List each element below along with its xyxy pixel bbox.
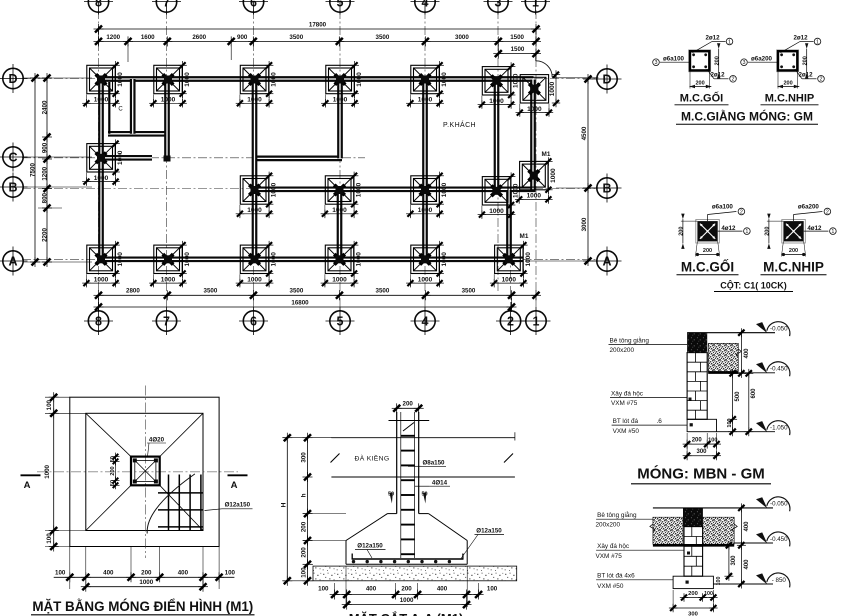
svg-text:400: 400 [366, 585, 377, 592]
svg-text:CỘT: C1( 10CK): CỘT: C1( 10CK) [720, 280, 787, 291]
svg-text:MẶT BẰNG MÓNG ĐIỂN HÌNH (M1): MẶT BẰNG MÓNG ĐIỂN HÌNH (M1) [32, 599, 253, 614]
svg-text:3500: 3500 [462, 288, 476, 295]
svg-text:100: 100 [318, 585, 329, 592]
svg-text:P.KHÁCH: P.KHÁCH [443, 120, 476, 129]
svg-text:1000: 1000 [549, 81, 556, 96]
svg-text:MẶT CẮT A-A (M1): MẶT CẮT A-A (M1) [349, 611, 464, 616]
svg-text:1000: 1000 [94, 175, 109, 182]
svg-text:1000: 1000 [418, 276, 433, 283]
svg-text:50: 50 [110, 480, 116, 486]
svg-text:ø6a200: ø6a200 [751, 56, 773, 63]
svg-text:VXM #75: VXM #75 [596, 553, 623, 560]
svg-text:400: 400 [744, 348, 750, 359]
svg-text:MÓNG: MBN - GM: MÓNG: MBN - GM [637, 465, 764, 483]
svg-text:200: 200 [301, 521, 308, 532]
svg-text:100: 100 [225, 569, 236, 576]
svg-text:200: 200 [703, 248, 712, 254]
svg-text:2200: 2200 [41, 228, 48, 242]
svg-text:VXM #50: VXM #50 [613, 428, 640, 435]
svg-text:200: 200 [301, 547, 308, 558]
svg-text:500: 500 [735, 391, 741, 402]
svg-text:1000: 1000 [525, 252, 532, 267]
svg-text:400: 400 [437, 585, 448, 592]
svg-text:600: 600 [751, 388, 757, 399]
svg-text:Bê tông giằng: Bê tông giằng [610, 335, 650, 344]
svg-text:300: 300 [688, 612, 698, 616]
svg-text:VXM #75: VXM #75 [611, 400, 638, 407]
svg-text:1000: 1000 [418, 207, 433, 214]
svg-text:200: 200 [403, 400, 414, 407]
svg-text:ĐÀ KIỀNG: ĐÀ KIỀNG [355, 453, 390, 463]
svg-text:1000: 1000 [513, 183, 520, 198]
svg-text:1000: 1000 [400, 597, 414, 604]
svg-text:1000: 1000 [247, 207, 262, 214]
svg-text:Xây đá hộc: Xây đá hộc [611, 390, 644, 397]
svg-text:M1: M1 [520, 233, 529, 240]
svg-text:300: 300 [731, 555, 737, 566]
svg-text:1000: 1000 [184, 252, 191, 267]
svg-text:100: 100 [708, 438, 717, 444]
svg-text:1000: 1000 [527, 106, 542, 113]
svg-text:1000: 1000 [44, 464, 51, 478]
svg-text:1000: 1000 [333, 97, 348, 104]
svg-text:2400: 2400 [41, 100, 48, 114]
svg-text:4500: 4500 [581, 126, 588, 140]
svg-text:100: 100 [301, 567, 308, 578]
svg-text:2800: 2800 [126, 288, 140, 295]
svg-text:1000: 1000 [356, 252, 363, 267]
svg-text:1000: 1000 [332, 276, 347, 283]
svg-text:200x200: 200x200 [610, 347, 635, 354]
svg-text:800: 800 [41, 192, 48, 203]
svg-text:4Ø20: 4Ø20 [149, 437, 165, 444]
svg-text:200: 200 [692, 438, 703, 444]
svg-text:-0.050: -0.050 [770, 326, 788, 333]
svg-text:M.C.GIẰNG MÓNG: GM: M.C.GIẰNG MÓNG: GM [681, 109, 813, 124]
svg-text:2ø12: 2ø12 [793, 35, 808, 42]
svg-text:.6: .6 [657, 418, 663, 425]
svg-text:1000: 1000 [441, 72, 448, 87]
svg-text:1500: 1500 [510, 34, 524, 41]
svg-text:16800: 16800 [291, 299, 309, 306]
svg-text:1000: 1000 [489, 208, 504, 215]
svg-text:1000: 1000 [356, 182, 363, 197]
svg-text:-0.050: -0.050 [770, 501, 788, 508]
svg-text:3000: 3000 [581, 217, 588, 231]
svg-text:100: 100 [727, 418, 733, 427]
svg-text:1000: 1000 [527, 193, 542, 200]
svg-text:1000: 1000 [139, 579, 153, 586]
svg-text:900: 900 [237, 34, 248, 41]
svg-text:A: A [24, 480, 31, 491]
svg-text:3500: 3500 [290, 288, 304, 295]
svg-text:2: 2 [826, 209, 829, 215]
svg-text:200: 200 [802, 56, 808, 65]
svg-text:3000: 3000 [455, 34, 469, 41]
svg-text:1: 1 [728, 39, 731, 45]
svg-text:VXM #50: VXM #50 [597, 583, 624, 590]
svg-text:100: 100 [46, 399, 53, 410]
svg-text:400: 400 [744, 559, 750, 570]
svg-text:1: 1 [816, 39, 819, 45]
svg-text:2ø12: 2ø12 [798, 72, 813, 79]
svg-text:200: 200 [784, 80, 793, 86]
svg-text:1000: 1000 [513, 73, 520, 88]
svg-text:3: 3 [655, 60, 658, 66]
svg-text:300: 300 [301, 452, 308, 463]
svg-text:3500: 3500 [204, 288, 218, 295]
svg-text:ø6a100: ø6a100 [712, 204, 734, 211]
svg-text:h: h [301, 493, 308, 497]
svg-text:1: 1 [831, 229, 834, 235]
svg-text:100: 100 [716, 577, 722, 586]
svg-text:ø6a100: ø6a100 [663, 56, 685, 63]
svg-text:1000: 1000 [356, 72, 363, 87]
svg-text:1000: 1000 [418, 97, 433, 104]
svg-text:400: 400 [744, 521, 750, 532]
svg-text:50: 50 [110, 456, 116, 462]
svg-text:Ø8a150: Ø8a150 [422, 459, 445, 466]
svg-text:200: 200 [764, 227, 770, 236]
svg-text:17800: 17800 [309, 22, 327, 29]
svg-text:Ø12a150: Ø12a150 [476, 527, 502, 534]
svg-text:1000: 1000 [271, 72, 278, 87]
svg-text:H: H [281, 502, 288, 507]
svg-text:1000: 1000 [184, 72, 191, 87]
svg-text:2600: 2600 [192, 34, 206, 41]
svg-text:200: 200 [110, 466, 116, 475]
svg-text:2: 2 [732, 77, 735, 83]
svg-text:200: 200 [401, 585, 412, 592]
svg-text:200: 200 [678, 227, 684, 236]
svg-text:3500: 3500 [289, 34, 303, 41]
svg-text:200: 200 [688, 591, 698, 597]
svg-text:A: A [231, 480, 238, 491]
svg-text:Ø12a150: Ø12a150 [357, 542, 383, 549]
svg-text:1000: 1000 [271, 252, 278, 267]
svg-text:1000: 1000 [94, 276, 109, 283]
svg-text:C: C [118, 107, 123, 113]
svg-text:1600: 1600 [141, 34, 155, 41]
svg-text:-0.450: -0.450 [770, 536, 788, 543]
svg-text:1: 1 [745, 229, 748, 235]
svg-text:1200: 1200 [106, 34, 120, 41]
svg-text:2: 2 [820, 77, 823, 83]
svg-text:BT lót đá: BT lót đá [613, 418, 639, 425]
svg-text:1000: 1000 [161, 276, 176, 283]
svg-text:- 850: - 850 [772, 577, 787, 584]
svg-text:400: 400 [103, 569, 114, 576]
svg-text:M.C.GỐI: M.C.GỐI [680, 91, 723, 105]
svg-text:1000: 1000 [271, 182, 278, 197]
svg-text:2ø12: 2ø12 [710, 72, 725, 79]
svg-text:400: 400 [178, 569, 189, 576]
svg-text:7500: 7500 [29, 163, 36, 177]
svg-text:1000: 1000 [117, 150, 124, 165]
svg-text:900: 900 [41, 142, 48, 153]
svg-text:1000: 1000 [117, 72, 124, 87]
svg-text:1200: 1200 [41, 166, 48, 180]
svg-text:Bê tông giằng: Bê tông giằng [597, 510, 637, 519]
svg-text:200: 200 [696, 80, 705, 86]
svg-text:1000: 1000 [161, 97, 176, 104]
svg-text:Ø12a150: Ø12a150 [225, 502, 251, 509]
svg-text:Xây đá hộc: Xây đá hộc [597, 543, 630, 550]
svg-text:100: 100 [487, 585, 498, 592]
svg-text:M1: M1 [542, 151, 551, 158]
svg-text:M.C.NHIP: M.C.NHIP [763, 259, 824, 274]
svg-text:-0.450: -0.450 [770, 366, 788, 373]
svg-text:100: 100 [46, 533, 53, 544]
svg-text:1000: 1000 [441, 252, 448, 267]
svg-text:3500: 3500 [376, 34, 390, 41]
svg-text:2ø12: 2ø12 [705, 35, 720, 42]
svg-text:1000: 1000 [489, 98, 504, 105]
svg-text:1000: 1000 [441, 182, 448, 197]
svg-text:M.C.NHIP: M.C.NHIP [765, 93, 815, 105]
svg-text:-1.050: -1.050 [770, 425, 788, 432]
svg-text:200x200: 200x200 [596, 522, 621, 529]
svg-text:1000: 1000 [94, 97, 109, 104]
svg-text:BT lót đá 4x6: BT lót đá 4x6 [597, 573, 635, 580]
svg-text:4Ø14: 4Ø14 [432, 479, 448, 486]
svg-text:200: 200 [714, 56, 720, 65]
svg-text:3500: 3500 [376, 288, 390, 295]
svg-text:200: 200 [141, 569, 152, 576]
svg-text:1000: 1000 [332, 207, 347, 214]
svg-text:100: 100 [704, 591, 713, 597]
svg-text:1000: 1000 [550, 168, 557, 183]
svg-text:300: 300 [696, 449, 707, 455]
svg-text:ø6a200: ø6a200 [798, 204, 820, 211]
svg-text:100: 100 [55, 569, 66, 576]
svg-text:1000: 1000 [502, 276, 517, 283]
svg-text:200: 200 [789, 248, 798, 254]
svg-text:1000: 1000 [117, 252, 124, 267]
svg-text:M.C.GỐI: M.C.GỐI [681, 259, 734, 274]
svg-text:1500: 1500 [511, 46, 525, 53]
svg-text:3: 3 [743, 60, 746, 66]
svg-text:2: 2 [740, 209, 743, 215]
svg-text:1000: 1000 [247, 276, 262, 283]
svg-text:1000: 1000 [247, 97, 262, 104]
